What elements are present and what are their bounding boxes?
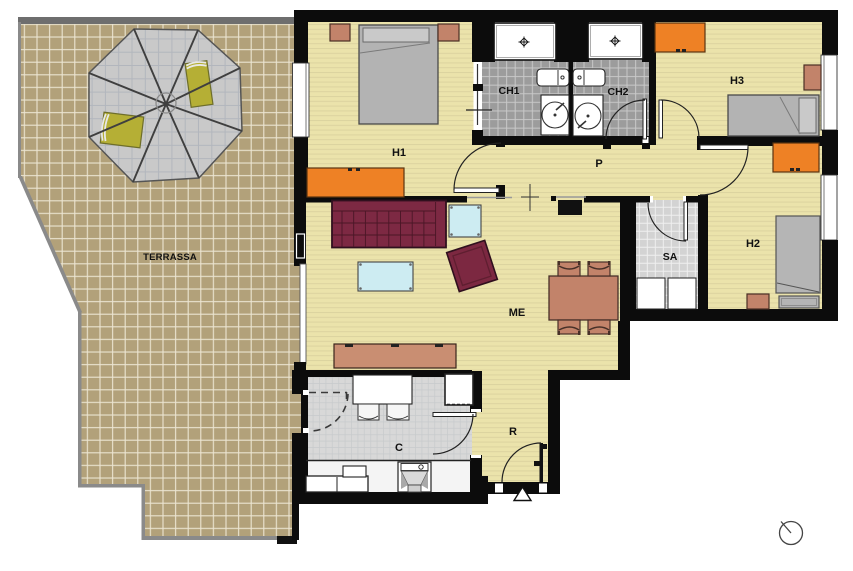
svg-text:TERRASSA: TERRASSA — [143, 252, 197, 263]
svg-text:H1: H1 — [392, 147, 406, 159]
svg-text:SA: SA — [663, 251, 678, 263]
svg-text:R: R — [509, 426, 517, 438]
svg-text:H2: H2 — [746, 238, 760, 250]
svg-text:H3: H3 — [730, 75, 744, 87]
svg-text:CH1: CH1 — [498, 85, 519, 97]
svg-text:CH2: CH2 — [607, 86, 628, 98]
svg-text:C: C — [395, 442, 403, 454]
svg-text:ME: ME — [509, 307, 526, 319]
svg-text:P: P — [595, 158, 602, 170]
